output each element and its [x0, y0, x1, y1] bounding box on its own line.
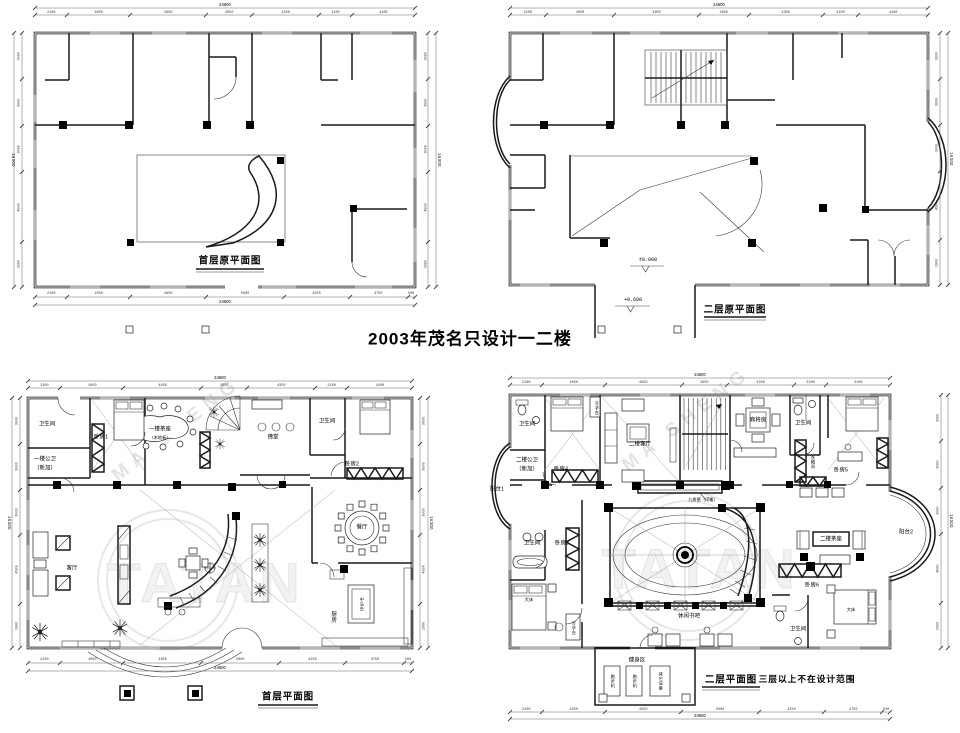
second-floor-scope-note: 三层以上不在设计范围: [759, 675, 856, 685]
room-label-kitchen: 厨房: [330, 611, 336, 623]
room-label-nine-fish-wall: 九鱼壁（浮雕）: [688, 498, 717, 503]
room-label-bed-6: 大床: [847, 608, 855, 613]
room-label-bathroom-3: 卫生间: [524, 540, 541, 546]
room-label-book-bar: 休闲书吧: [678, 613, 700, 619]
room-label-fitness: 健身区: [629, 657, 646, 663]
room-label-island: 中岛台: [359, 597, 364, 611]
room-label-bathroom-6: 卫生间: [790, 626, 807, 632]
room-label-bedroom-1: 卧房1: [94, 434, 108, 440]
room-label-bathroom-2f-mid: 卫生间: [795, 420, 812, 426]
dim-total-c-left: 16300: [7, 516, 12, 530]
room-label-public-wc-1f-sub: （新加）: [34, 465, 56, 471]
dim-total-a-top: 24600: [219, 2, 231, 7]
caption-second-floor: 二层平面图: [705, 675, 757, 685]
equipment-label-other: 其它设备: [658, 672, 663, 690]
caption-original-first-floor: 首层原平面图: [199, 256, 262, 266]
dim-total-c-top: 24600: [214, 375, 226, 380]
dim-total-d-top: 24600: [694, 372, 706, 377]
room-label-public-wc-1f: 一楼公卫: [34, 456, 56, 462]
svg-text:TATAN: TATAN: [601, 537, 798, 600]
floor-plan-sheet: TATAN MA SHENG TATAN MA SHENG: [0, 0, 960, 733]
room-label-bedroom-4: 卧房4: [554, 466, 568, 472]
dim-total-a-left: 16300: [11, 153, 16, 167]
equipment-label-treadmill-1: 跑步机: [610, 674, 615, 688]
caption-original-second-floor: 二层原平面图: [704, 305, 767, 315]
dim-total-a-bottom: 24600: [219, 300, 231, 305]
room-label-buddha-hall: 佛堂: [268, 434, 279, 440]
room-label-dining: 餐厅: [357, 524, 368, 530]
room-label-balcony-2: 阳台2: [899, 529, 913, 535]
room-label-tea-area: 一楼茶座: [149, 426, 171, 432]
room-label-bedroom-3: 卧房3: [555, 540, 569, 546]
room-label-bedroom-5: 卧房5: [834, 467, 848, 473]
plan-first-floor: [10, 379, 430, 708]
room-label-tea-area-2f: 二楼茶座: [820, 536, 842, 542]
plan-original-second-floor: [494, 6, 951, 338]
room-label-bed-3: 大床: [525, 598, 533, 603]
room-label-public-wc-2f: 二楼公卫: [516, 457, 538, 463]
plan-original-first-floor: [12, 6, 438, 333]
room-label-living-2f: 二楼客厅: [629, 441, 651, 447]
dim-total-c-bottom: 24600: [214, 665, 226, 670]
room-label-living: 客厅: [67, 565, 78, 571]
room-label-desk-1: 写字台: [594, 401, 599, 415]
elevation-marker-zero: ±0.000: [639, 257, 657, 263]
room-label-bedroom-2: 卧房2: [345, 461, 359, 467]
room-label-bathroom-1: 卫生间: [39, 421, 56, 427]
room-label-bathroom-2: 卫生间: [319, 418, 336, 424]
dim-total-d-bottom: 24600: [694, 713, 706, 718]
design-scope-note: 2003年茂名只设计一二楼: [368, 325, 572, 350]
room-label-tea-area-sub: （木地板）: [150, 436, 171, 441]
equipment-label-treadmill-2: 跑步机: [632, 674, 637, 688]
dim-total-c-right: 16300: [429, 516, 434, 530]
dim-total-a-right: 16300: [437, 153, 442, 167]
dim-total-b-top: 24600: [713, 2, 725, 7]
caption-first-floor: 首层平面图: [262, 692, 314, 702]
room-label-cloakroom: 衣帽间: [810, 455, 815, 469]
room-label-balcony-1: 阳台1: [490, 486, 504, 492]
dim-total-b-right: 16300: [949, 152, 954, 166]
elevation-marker-entry: +0.600: [624, 297, 642, 303]
cad-drawing-canvas: TATAN MA SHENG TATAN MA SHENG: [0, 0, 960, 733]
svg-text:MA SHENG: MA SHENG: [618, 362, 755, 476]
dim-total-d-right: 16300: [949, 514, 954, 528]
room-label-mahjong: 麻将房: [750, 417, 767, 423]
room-label-bedroom-6: 卧房6: [805, 582, 819, 588]
room-label-public-wc-2f-sub: （新加）: [516, 466, 538, 472]
room-label-desk-2: 写字台: [571, 621, 576, 635]
room-label-bathroom-2f-top: 卫生间: [519, 421, 536, 427]
